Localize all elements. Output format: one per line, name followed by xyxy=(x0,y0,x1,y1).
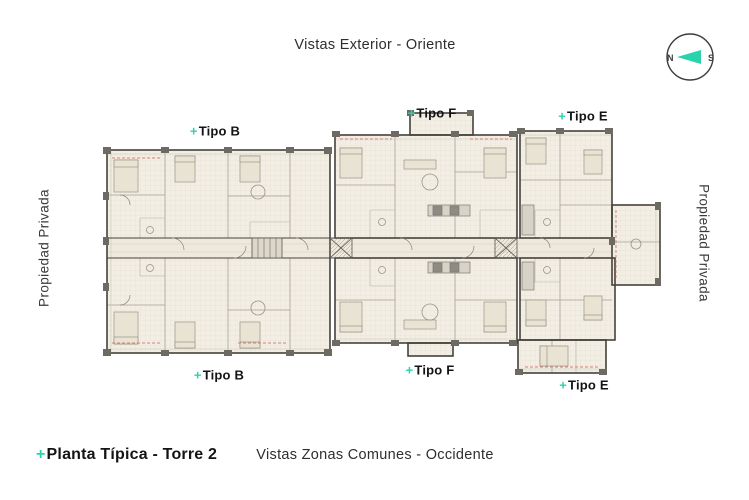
plus-icon: + xyxy=(190,124,198,139)
unit-label-text: Tipo F xyxy=(414,363,454,378)
page: Vistas Exterior - Oriente N S +Tipo B +T… xyxy=(0,0,749,500)
unit-label-tipo-b-top: +Tipo B xyxy=(190,124,240,139)
side-label-left: Propiedad Privada xyxy=(37,189,52,307)
plan-title: +Planta Típica - Torre 2 xyxy=(36,446,217,464)
plus-icon: + xyxy=(406,363,414,378)
unit-label-tipo-e-top: +Tipo E xyxy=(558,109,607,124)
plus-icon: + xyxy=(558,109,566,124)
unit-label-text: Tipo E xyxy=(567,109,608,124)
view-title-top: Vistas Exterior - Oriente xyxy=(294,37,455,53)
unit-label-tipo-f-bottom: +Tipo F xyxy=(406,363,455,378)
compass-south-letter: S xyxy=(708,53,714,63)
unit-label-tipo-f-top: +Tipo F xyxy=(408,106,457,121)
unit-label-tipo-e-bottom: +Tipo E xyxy=(559,378,608,393)
floor-plan-drawing xyxy=(0,0,749,500)
side-label-right: Propiedad Privada xyxy=(697,184,712,302)
unit-label-tipo-b-bottom: +Tipo B xyxy=(194,368,244,383)
plan-title-text: Planta Típica - Torre 2 xyxy=(47,446,218,463)
plus-icon: + xyxy=(559,378,567,393)
plus-icon: + xyxy=(36,446,46,463)
plus-icon: + xyxy=(408,106,416,121)
unit-label-text: Tipo E xyxy=(568,378,609,393)
unit-label-text: Tipo B xyxy=(199,124,240,139)
view-title-bottom: Vistas Zonas Comunes - Occidente xyxy=(256,447,493,463)
unit-label-text: Tipo B xyxy=(203,368,244,383)
unit-label-text: Tipo F xyxy=(416,106,456,121)
plus-icon: + xyxy=(194,368,202,383)
compass-icon: N S xyxy=(661,28,719,86)
compass-north-letter: N xyxy=(667,53,674,63)
